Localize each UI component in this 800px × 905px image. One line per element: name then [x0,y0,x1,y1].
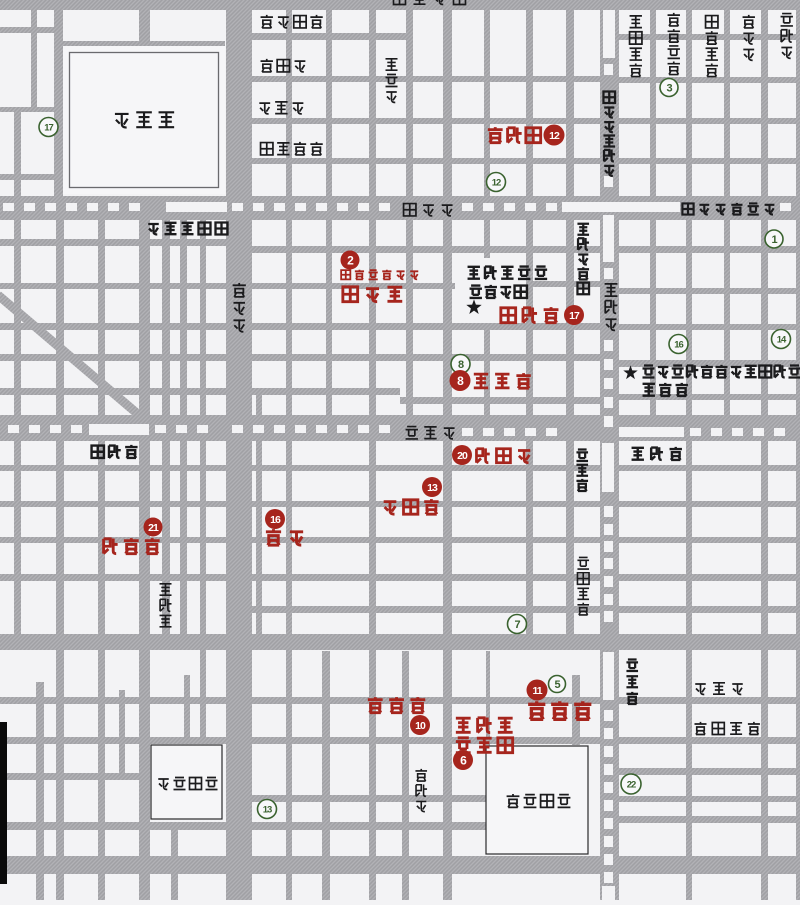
svg-text:11: 11 [532,685,542,697]
svg-text:16: 16 [270,514,281,526]
svg-text:17: 17 [569,310,580,322]
svg-text:17: 17 [44,122,53,133]
svg-text:1: 1 [771,234,777,246]
svg-text:22: 22 [627,779,636,790]
svg-text:12: 12 [492,177,501,188]
svg-text:16: 16 [674,339,683,350]
svg-text:12: 12 [549,130,560,142]
svg-text:21: 21 [148,522,159,534]
svg-text:10: 10 [415,720,426,732]
svg-text:13: 13 [427,482,438,494]
svg-text:7: 7 [514,619,520,631]
svg-text:5: 5 [554,679,560,691]
svg-text:13: 13 [263,804,272,815]
svg-text:8: 8 [458,359,464,371]
svg-text:20: 20 [457,450,468,462]
svg-text:3: 3 [666,83,672,95]
